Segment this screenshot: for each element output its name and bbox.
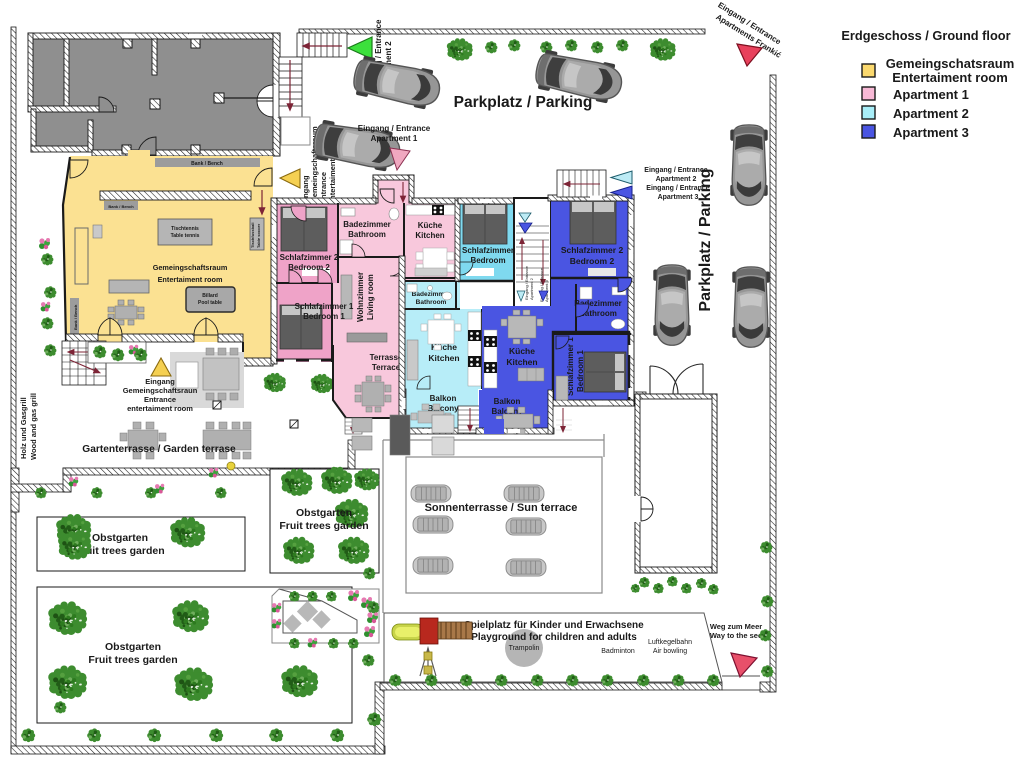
svg-text:Entrance: Entrance (144, 395, 176, 404)
svg-text:Schlafzimmer 2: Schlafzimmer 2 (280, 253, 339, 262)
svg-text:Apartment 1: Apartment 1 (893, 87, 969, 102)
svg-text:Küche: Küche (509, 346, 535, 356)
svg-text:Kitchen: Kitchen (506, 357, 537, 367)
svg-text:entertaiment room: entertaiment room (127, 404, 193, 413)
svg-text:Schlafzimmer 1: Schlafzimmer 1 (295, 302, 354, 311)
svg-text:Eingang: Eingang (145, 377, 175, 386)
svg-text:Bathroom: Bathroom (416, 299, 447, 306)
svg-text:Billard: Billard (202, 293, 218, 299)
svg-text:Badezimmer: Badezimmer (343, 220, 391, 229)
svg-text:Wood and gas grill: Wood and gas grill (29, 393, 38, 460)
svg-text:Apartment 3: Apartment 3 (893, 125, 969, 140)
svg-text:Kitchen: Kitchen (428, 353, 459, 363)
svg-text:Entertaiment room: Entertaiment room (158, 275, 223, 284)
svg-text:Bank / Bench: Bank / Bench (108, 204, 134, 209)
svg-text:Table soccer: Table soccer (256, 223, 261, 248)
svg-text:Obstgarten: Obstgarten (92, 532, 148, 544)
svg-text:Apartment 3: Apartment 3 (658, 194, 699, 201)
svg-text:Terrace: Terrace (372, 363, 401, 372)
svg-text:Entertaiment room: Entertaiment room (892, 70, 1008, 85)
svg-text:Gemeingschaftsraum: Gemeingschaftsraum (153, 263, 228, 272)
svg-text:Bedroom 2: Bedroom 2 (570, 256, 615, 266)
svg-text:Sonnenterrasse / Sun terrace: Sonnenterrasse / Sun terrace (425, 502, 578, 514)
svg-text:Air bowling: Air bowling (653, 648, 687, 655)
svg-text:Küche: Küche (418, 221, 443, 230)
svg-text:Bank / Bench: Bank / Bench (73, 304, 78, 330)
svg-text:Table tennis: Table tennis (171, 233, 200, 239)
svg-text:Bedroom 1: Bedroom 1 (576, 350, 585, 392)
svg-text:Holz und Gasgrill: Holz und Gasgrill (19, 397, 28, 459)
svg-text:Kitchen: Kitchen (415, 231, 444, 240)
svg-text:Bedroom: Bedroom (470, 256, 505, 265)
svg-text:Parkplatz / Parking: Parkplatz / Parking (697, 168, 714, 311)
svg-text:Badminton: Badminton (601, 648, 635, 655)
svg-text:Living room: Living room (366, 274, 375, 320)
svg-text:Fruit trees garden: Fruit trees garden (279, 520, 368, 532)
svg-text:Parkplatz / Parking: Parkplatz / Parking (454, 94, 593, 111)
svg-text:Apartment 1: Apartment 1 (371, 134, 418, 143)
svg-text:Gemeingschatsraum: Gemeingschatsraum (886, 56, 1015, 71)
svg-text:Obstgarten: Obstgarten (105, 641, 161, 653)
svg-text:Way to the see: Way to the see (710, 631, 762, 640)
svg-text:Bedroom 1: Bedroom 1 (303, 312, 345, 321)
svg-text:Luftkegelbahn: Luftkegelbahn (648, 639, 692, 646)
svg-text:Terrasse: Terrasse (370, 353, 403, 362)
svg-text:Eingang / Entrance: Eingang / Entrance (358, 124, 431, 133)
svg-text:Gartenterrasse / Garden terras: Gartenterrasse / Garden terrase (82, 444, 236, 455)
svg-text:Bathroom: Bathroom (348, 230, 386, 239)
svg-text:Playground for children and ad: Playground for children and adults (471, 632, 637, 643)
svg-text:Schlafzimmer: Schlafzimmer (462, 246, 514, 255)
svg-text:Balkon: Balkon (494, 397, 521, 406)
svg-text:Trampolin: Trampolin (509, 645, 540, 652)
svg-text:Schlafzimmer 2: Schlafzimmer 2 (561, 245, 624, 255)
svg-text:Tischfussball: Tischfussball (250, 223, 255, 249)
svg-text:Fruit trees garden: Fruit trees garden (88, 654, 177, 666)
svg-text:Apartment 2: Apartment 2 (893, 106, 969, 121)
svg-text:Weg zum Meer: Weg zum Meer (710, 622, 762, 631)
svg-text:Spielplatz für Kinder und Erw: Spielplatz für Kinder und Erwachsene (464, 620, 644, 631)
svg-text:Tischtennis: Tischtennis (171, 226, 199, 232)
svg-text:Balkon: Balkon (430, 394, 457, 403)
svg-text:Pool table: Pool table (198, 300, 222, 306)
svg-text:Apartment 2: Apartment 2 (656, 176, 697, 183)
svg-text:Bank / Bench: Bank / Bench (191, 161, 223, 167)
svg-text:Apartment 2: Apartment 2 (529, 277, 534, 300)
svg-text:Obstgarten: Obstgarten (296, 507, 352, 519)
svg-text:Gemeingschaftsraun: Gemeingschaftsraun (123, 386, 198, 395)
svg-text:Erdgeschoss / Ground floor: Erdgeschoss / Ground floor (841, 28, 1010, 43)
svg-text:Wohnzimmer: Wohnzimmer (356, 272, 365, 322)
